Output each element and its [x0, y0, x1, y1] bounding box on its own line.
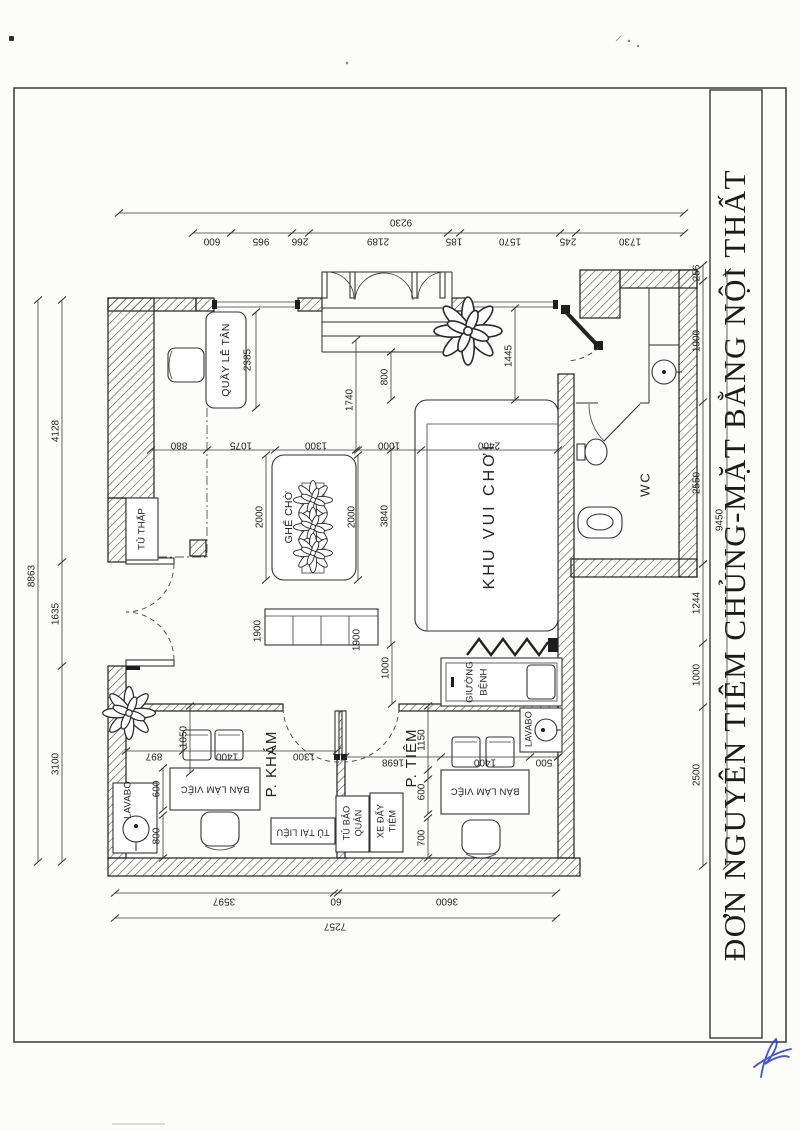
- dim: 800: [152, 827, 163, 844]
- dim-right-total: 9450: [715, 508, 726, 531]
- reception-chair: [168, 348, 204, 382]
- entry-door-leaf: [440, 272, 445, 298]
- plant-entrance: [434, 297, 502, 365]
- entry-door-leaf: [412, 272, 417, 298]
- dim: 3597: [212, 895, 235, 906]
- label-desk-exam: BÀN LÀM VIỆC: [181, 783, 250, 794]
- dim: 1000: [692, 663, 703, 686]
- dim: 800: [380, 368, 391, 385]
- label-exam-room: P. KHÁM: [263, 731, 280, 798]
- dim: 1900: [253, 619, 264, 642]
- scanned-floor-plan-page: ĐƠN NGUYÊN TIÊM CHỦNG-MẶT BẰNG NỘI THẤT: [0, 0, 800, 1131]
- wc-right-wall: [679, 270, 697, 577]
- stool-injection: [462, 820, 500, 854]
- dim: 2385: [243, 348, 254, 371]
- floor-plan-drawing: ĐƠN NGUYÊN TIÊM CHỦNG-MẶT BẰNG NỘI THẤT: [0, 0, 800, 1131]
- dim: 2550: [692, 471, 703, 494]
- dim: 1400: [473, 756, 496, 767]
- dim: 965: [252, 235, 269, 246]
- sink-injection: [535, 719, 557, 741]
- label-waiting-seats: GHẾ CHỜ: [282, 491, 295, 544]
- label-document-cabinet: TỦ TÀI LIỆU: [276, 828, 329, 839]
- bed-pillow: [527, 665, 555, 699]
- label-lavabo-exam: LAVABO: [123, 781, 134, 819]
- dim: 1698: [381, 756, 404, 767]
- dim: 1075: [229, 439, 252, 450]
- label-injection-cart: TIÊM: [387, 810, 397, 832]
- stool-exam: [201, 812, 239, 846]
- label-wc: WC: [637, 471, 652, 497]
- entry-door-leaf: [350, 272, 355, 298]
- dim: 245: [559, 235, 576, 246]
- dim: 880: [170, 439, 187, 450]
- dim: 2000: [347, 505, 358, 528]
- toilet-tank: [577, 444, 585, 460]
- dim: 600: [152, 780, 163, 797]
- dim-left-total: 8863: [27, 564, 38, 587]
- dim: 60: [330, 895, 342, 906]
- label-low-cabinet: TỦ THẤP: [136, 508, 148, 550]
- plant-exam: [103, 687, 156, 740]
- dim: 1635: [51, 602, 62, 625]
- dim: 1050: [179, 725, 190, 748]
- dim: 1900: [692, 329, 703, 352]
- bottom-wall: [108, 858, 580, 876]
- dim: 1300: [304, 439, 327, 450]
- label-storage-cabinet: QUẢN: [352, 810, 363, 837]
- dim: 897: [145, 750, 162, 761]
- title-block: ĐƠN NGUYÊN TIÊM CHỦNG-MẶT BẰNG NỘI THẤT: [710, 90, 762, 1038]
- dim: 1445: [504, 344, 515, 367]
- entry-door-leaf: [322, 272, 327, 298]
- dim-top-total: 9230: [389, 216, 412, 227]
- dim: 2000: [255, 505, 266, 528]
- dim: 266: [291, 235, 308, 246]
- dim: 1000: [381, 656, 392, 679]
- label-lavabo-injection: LAVABO: [523, 711, 533, 747]
- plant-waiting: [293, 533, 332, 572]
- dim: 185: [445, 235, 462, 246]
- dim: 3840: [380, 504, 391, 527]
- dim: 256: [692, 264, 703, 281]
- dim: 1730: [618, 235, 641, 246]
- sink-exam: [123, 816, 149, 842]
- dim: 3100: [51, 752, 62, 775]
- label-injection-room: P. TIÊM: [403, 729, 420, 788]
- dim: 2500: [692, 763, 703, 786]
- dim: 3600: [435, 895, 458, 906]
- label-reception: QUẦY LỄ TÂN: [219, 323, 232, 396]
- toilet-bowl: [585, 439, 607, 465]
- thick-left-wall: [108, 298, 154, 498]
- label-storage-cabinet: TỦ BẢO: [340, 806, 351, 841]
- label-play-area: KHU VUI CHƠI: [481, 443, 498, 590]
- label-patient-bed: BỆNH: [479, 668, 490, 695]
- dim: 4128: [51, 419, 62, 442]
- dim-bottom-total: 7257: [323, 920, 346, 931]
- dim: 700: [417, 829, 428, 846]
- dim: 1000: [377, 439, 400, 450]
- dim: 1300: [292, 750, 315, 761]
- dim: 1570: [498, 235, 521, 246]
- label-injection-cart: XE ĐẨY: [374, 804, 385, 838]
- drawing-title: ĐƠN NGUYÊN TIÊM CHỦNG-MẶT BẰNG NỘI THẤT: [717, 169, 752, 961]
- wc-bottom-wall: [571, 559, 697, 577]
- dim: 1740: [345, 388, 356, 411]
- dim: 1900: [352, 628, 363, 651]
- dim: 1244: [692, 591, 703, 614]
- label-patient-bed: GIƯỜNG: [465, 661, 476, 703]
- dim: 2189: [366, 235, 389, 246]
- dim: 600: [203, 235, 220, 246]
- dim: 1400: [215, 750, 238, 761]
- right-wall: [558, 374, 574, 858]
- label-desk-injection: BÀN LÀM VIỆC: [451, 785, 520, 796]
- dim: 500: [535, 756, 552, 767]
